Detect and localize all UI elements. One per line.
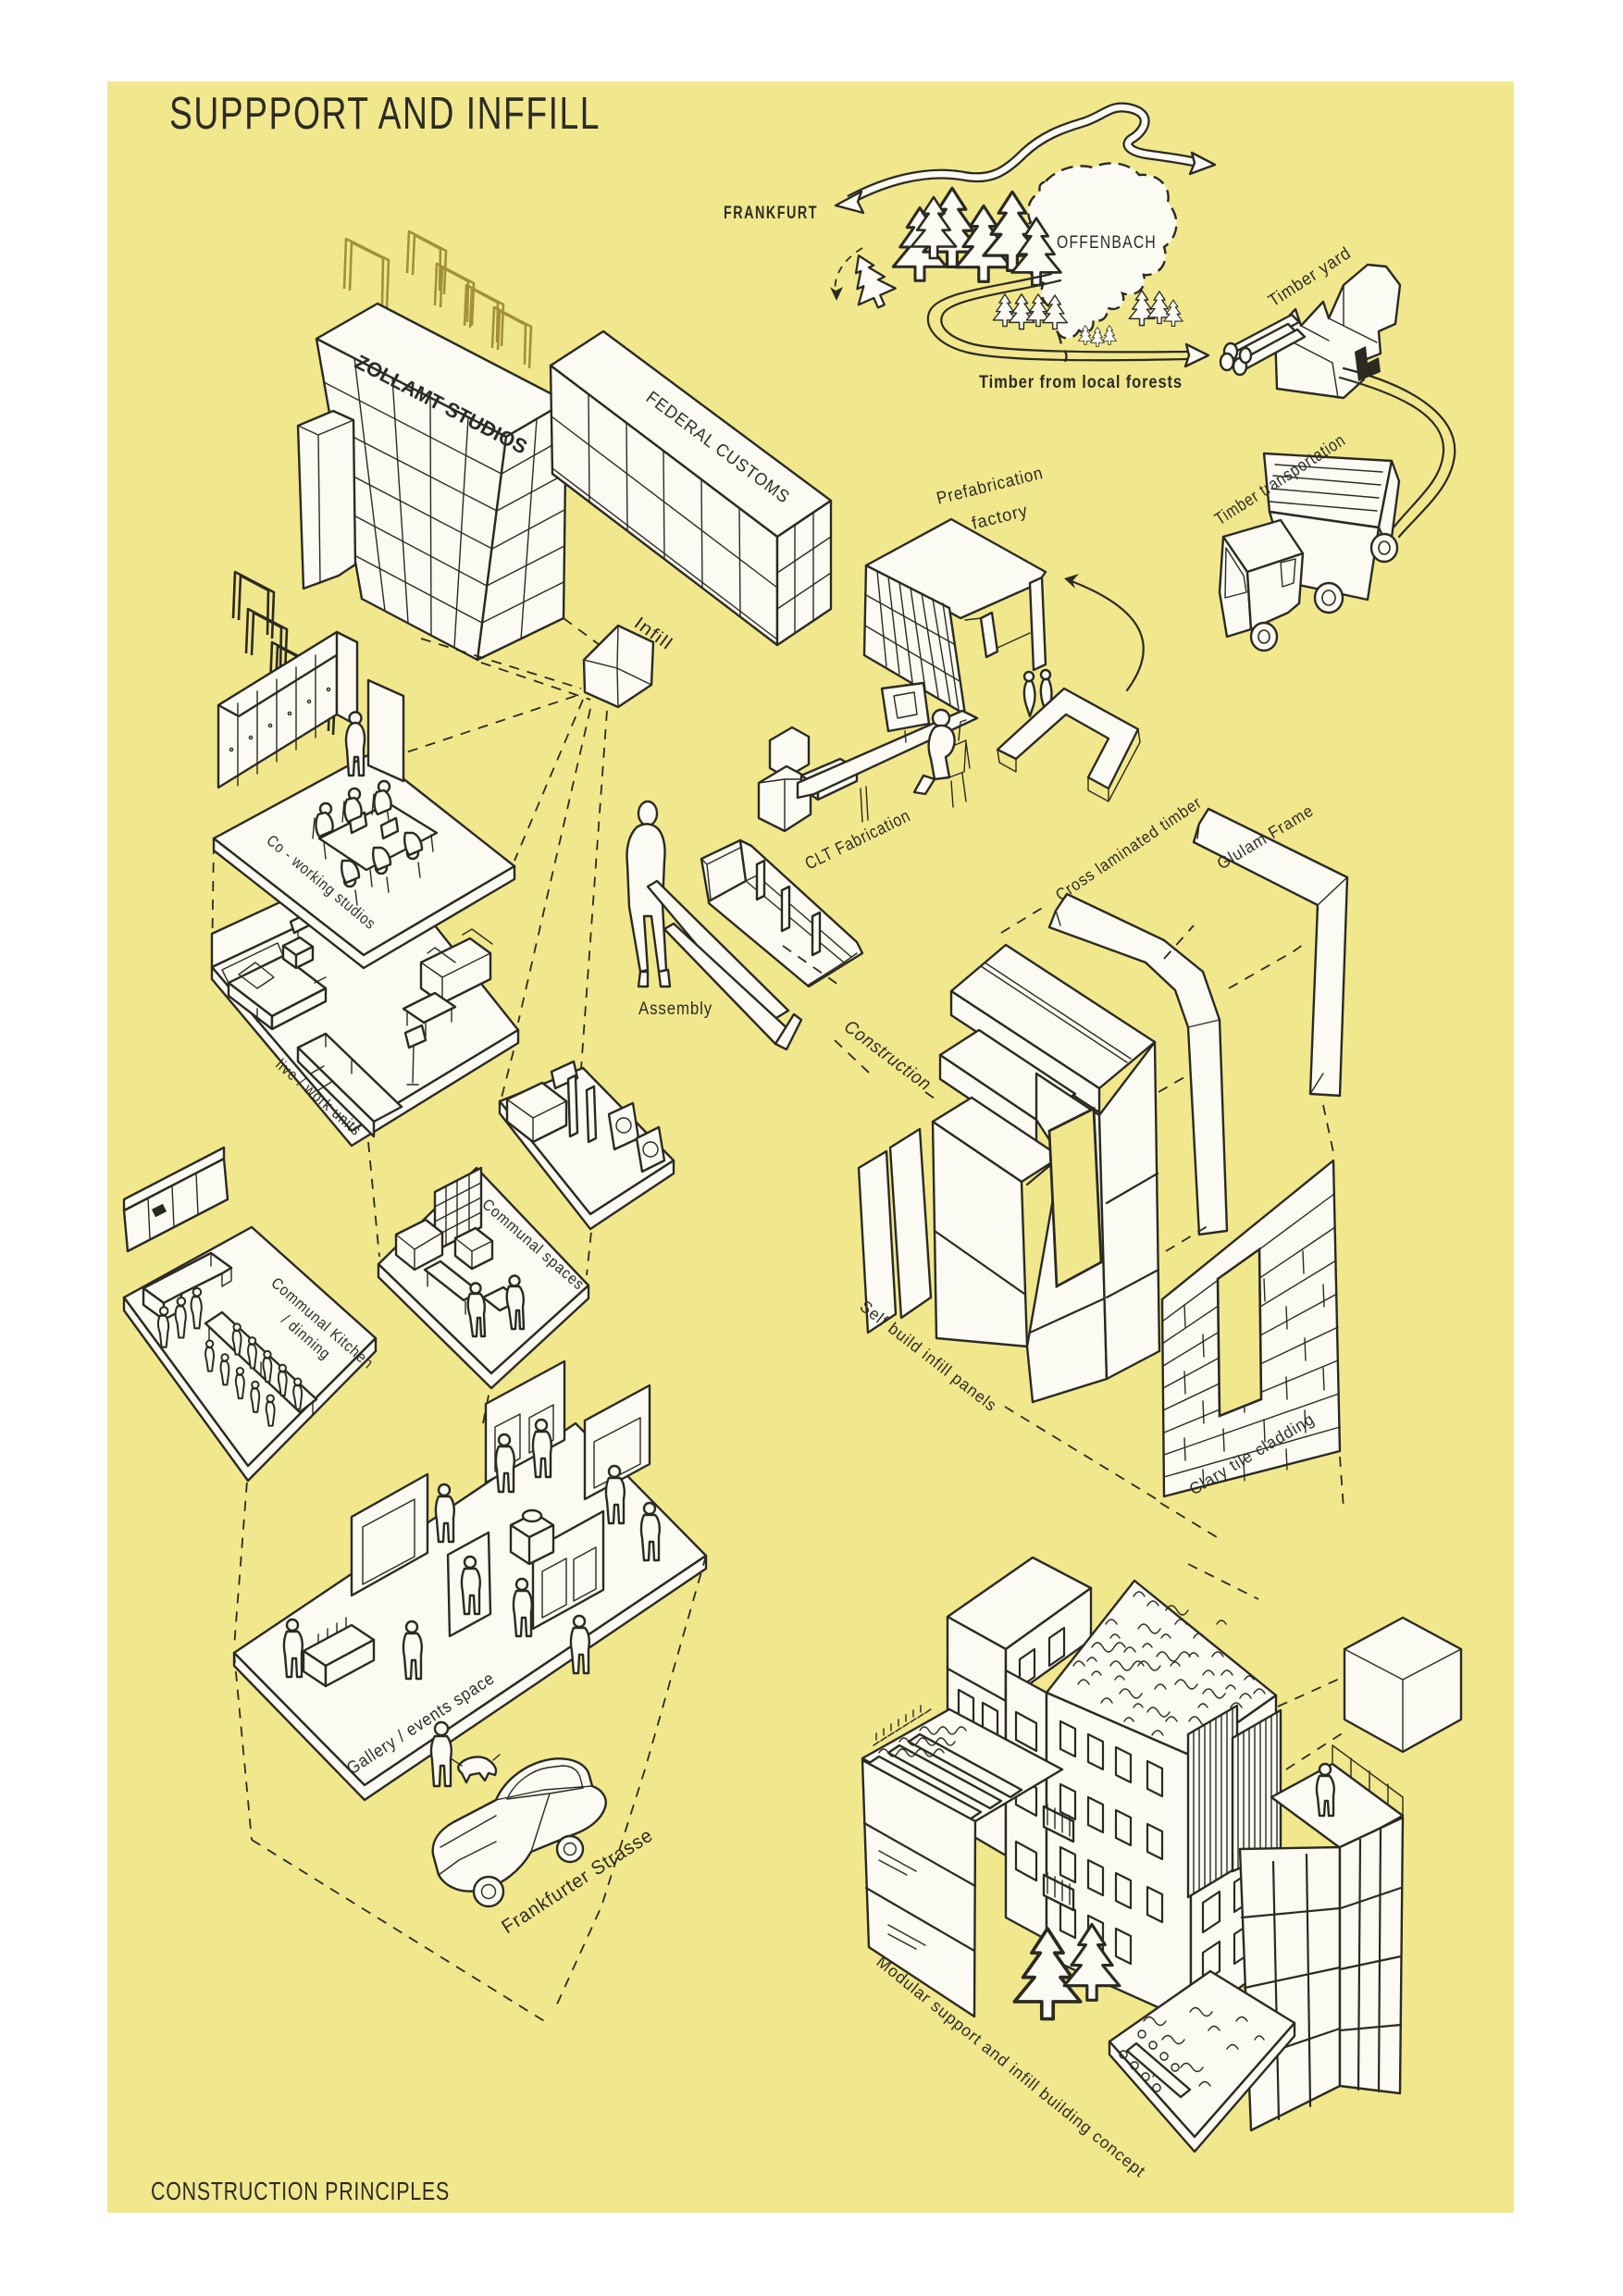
svg-text:Assembly: Assembly	[638, 999, 712, 1019]
svg-text:OFFENBACH: OFFENBACH	[1057, 233, 1157, 253]
svg-text:Timber from local forests: Timber from local forests	[979, 373, 1183, 392]
svg-text:FRANKFURT: FRANKFURT	[724, 204, 818, 223]
svg-text:CONSTRUCTION PRINCIPLES: CONSTRUCTION PRINCIPLES	[151, 2177, 450, 2205]
svg-text:SUPPPORT AND INFFILL: SUPPPORT AND INFFILL	[169, 89, 601, 139]
